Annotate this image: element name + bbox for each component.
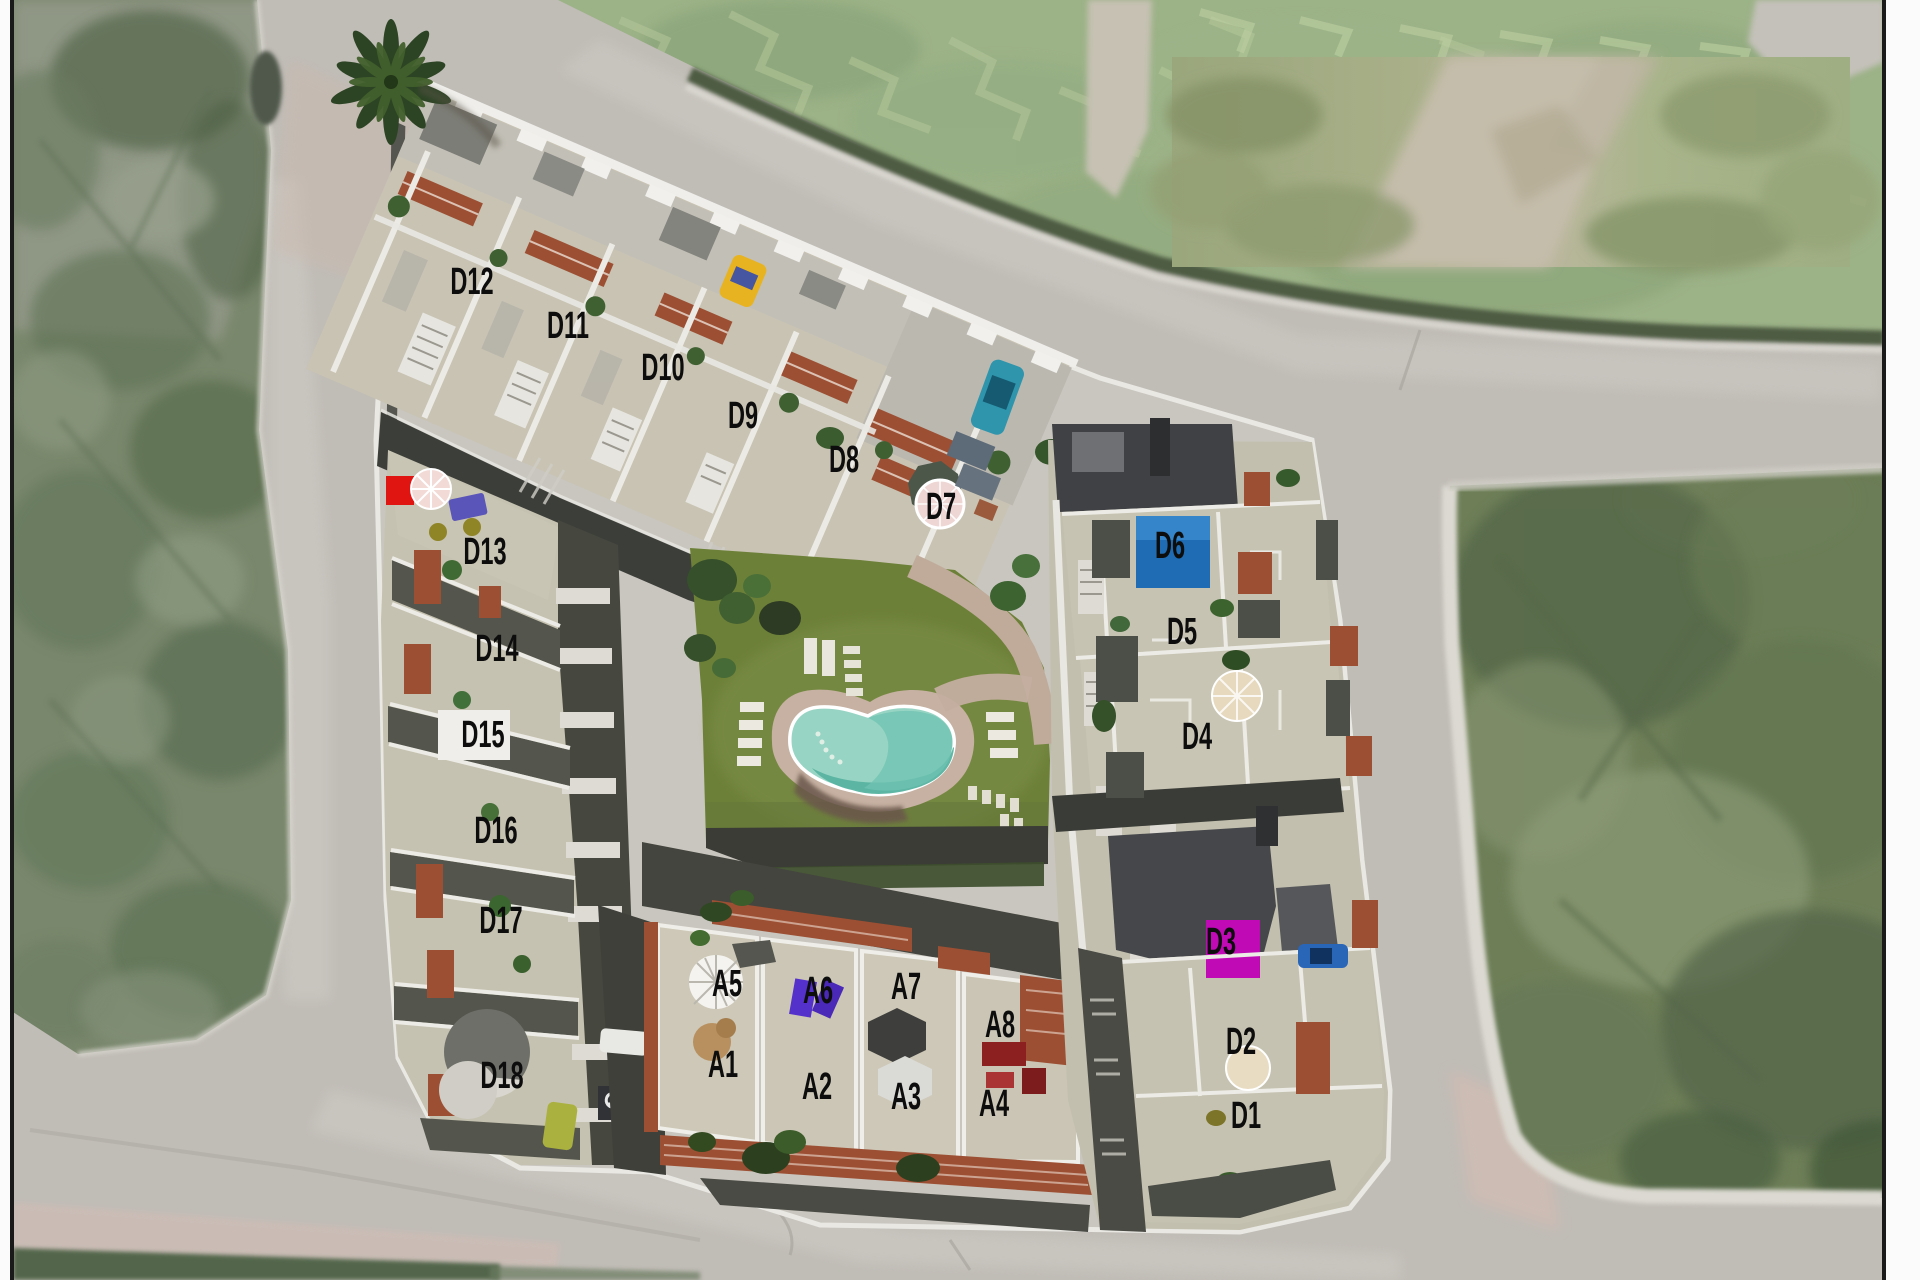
svg-text:D12: D12 [450,259,493,302]
svg-text:D8: D8 [829,437,859,480]
svg-text:D2: D2 [1226,1019,1256,1062]
svg-text:D10: D10 [641,345,684,388]
svg-text:D7: D7 [926,484,956,527]
svg-text:D9: D9 [728,393,758,436]
svg-text:D4: D4 [1182,714,1212,757]
svg-text:D5: D5 [1167,609,1197,652]
svg-text:A3: A3 [891,1074,921,1117]
svg-text:D17: D17 [479,898,522,941]
svg-text:A4: A4 [979,1081,1009,1124]
svg-text:D14: D14 [475,626,519,669]
svg-text:A1: A1 [708,1042,738,1085]
svg-text:A8: A8 [985,1002,1015,1045]
svg-text:D11: D11 [547,303,589,346]
svg-text:A6: A6 [803,968,833,1011]
svg-text:D13: D13 [463,529,506,572]
svg-text:D3: D3 [1206,919,1236,962]
svg-text:D16: D16 [474,808,517,851]
svg-text:A2: A2 [802,1064,832,1107]
svg-text:D6: D6 [1155,523,1185,566]
svg-text:D15: D15 [461,712,504,755]
svg-text:A5: A5 [712,961,742,1004]
svg-text:D18: D18 [480,1053,523,1096]
svg-text:A7: A7 [891,964,921,1007]
svg-text:D1: D1 [1231,1093,1261,1136]
